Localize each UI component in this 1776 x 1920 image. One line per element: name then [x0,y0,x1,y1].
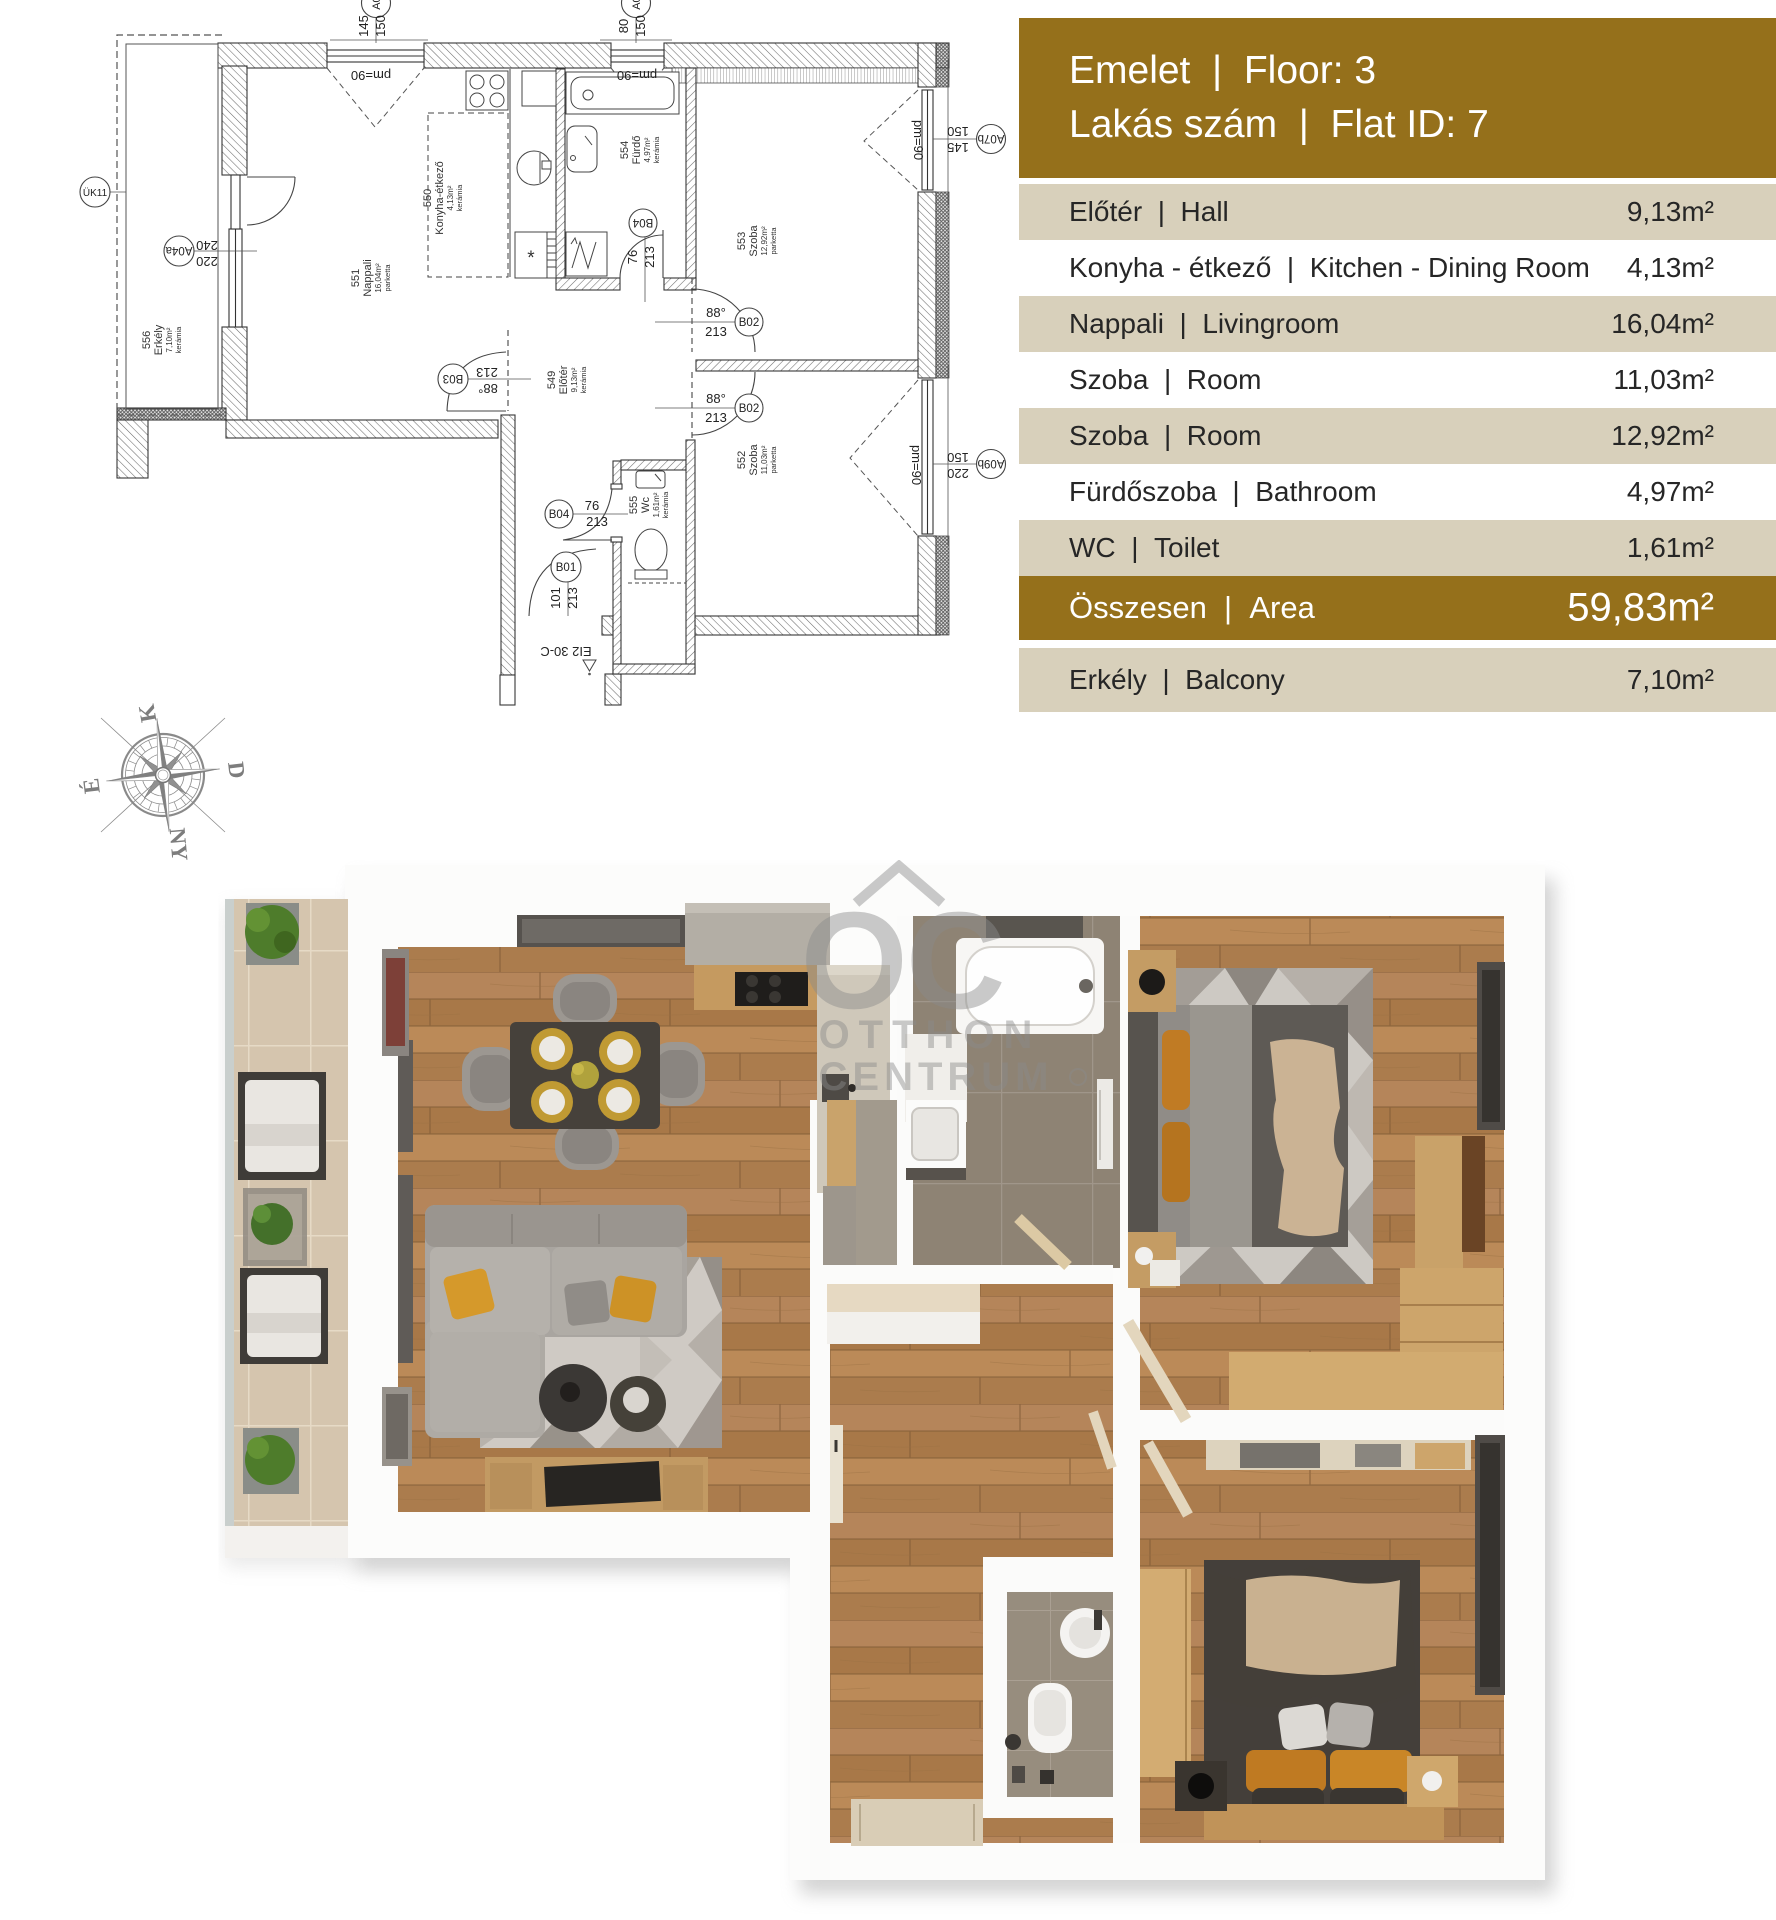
svg-text:Wc: Wc [640,497,652,513]
svg-text:213: 213 [565,587,580,609]
svg-text:B02: B02 [739,317,759,329]
svg-text:76: 76 [625,250,640,264]
svg-text:parketta: parketta [769,227,778,255]
svg-text:11,03m²: 11,03m² [760,445,769,474]
svg-text:240: 240 [196,238,218,253]
svg-text:Szoba: Szoba [748,225,760,257]
svg-text:A04: A04 [631,0,643,10]
svg-text:213: 213 [705,324,727,339]
svg-text:ÜK11: ÜK11 [83,187,108,199]
svg-text:555: 555 [628,496,640,514]
svg-text:*: * [527,248,535,269]
svg-text:K: K [134,702,162,724]
svg-text:4,13m²: 4,13m² [446,185,455,210]
svg-text:88°: 88° [706,305,726,320]
svg-text:A04: A04 [371,0,383,10]
svg-text:pm=90: pm=90 [351,68,391,83]
svg-text:É: É [78,777,105,795]
svg-text:OTTHON: OTTHON [819,1013,1042,1057]
svg-text:12,92m²: 12,92m² [760,226,769,256]
svg-text:parketta: parketta [383,264,392,292]
svg-text:9,13m²: 9,13m² [570,367,579,392]
svg-text:150: 150 [633,15,648,37]
svg-text:A07b: A07b [978,132,1005,144]
svg-text:150: 150 [947,450,969,465]
svg-text:150: 150 [373,15,388,37]
svg-text:Előtér: Előtér [558,365,570,394]
svg-text:80: 80 [616,19,631,33]
svg-text:Nappali: Nappali [362,259,374,296]
svg-text:kerámia: kerámia [579,366,588,394]
svg-text:145: 145 [356,15,371,37]
svg-text:Konyha-étkező: Konyha-étkező [434,161,446,234]
svg-text:NY: NY [165,827,193,863]
svg-text:220: 220 [947,466,969,481]
svg-text:552: 552 [736,451,748,469]
svg-text:A09b: A09b [978,457,1005,469]
svg-text:76: 76 [585,498,599,513]
svg-text:145: 145 [947,140,969,155]
svg-text:kerámia: kerámia [174,326,183,354]
svg-text:549: 549 [546,371,558,389]
svg-text:Erkély: Erkély [153,324,165,355]
svg-text:B04: B04 [632,216,653,228]
svg-text:554: 554 [619,141,631,159]
svg-text:213: 213 [705,410,727,425]
svg-text:550: 550 [422,189,434,207]
svg-text:213: 213 [642,246,657,268]
svg-text:16,04m²: 16,04m² [374,263,383,293]
svg-text:EI2 30-C: EI2 30-C [540,644,591,659]
svg-text:CENTRUM: CENTRUM [819,1055,1054,1099]
svg-text:pm=90: pm=90 [617,68,657,83]
svg-text:kerámia: kerámia [652,136,661,164]
svg-text:B01: B01 [556,562,576,574]
svg-text:D: D [223,760,250,780]
svg-text:B04: B04 [549,509,570,521]
svg-text:Fürdő: Fürdő [631,136,643,165]
svg-text:551: 551 [350,269,362,287]
svg-text:parketta: parketta [769,446,778,474]
svg-text:A04a: A04a [165,244,192,256]
svg-text:88°: 88° [706,391,726,406]
svg-text:220: 220 [196,254,218,269]
svg-text:213: 213 [476,365,498,380]
svg-text:553: 553 [736,232,748,250]
svg-text:pm=90: pm=90 [909,445,924,485]
svg-text:kerámia: kerámia [455,184,464,212]
svg-text:B02: B02 [739,403,759,415]
svg-text:150: 150 [947,124,969,139]
svg-text:556: 556 [141,331,153,349]
svg-text:88°: 88° [478,381,498,396]
svg-text:4,97m²: 4,97m² [643,137,652,162]
svg-text:7,10m²: 7,10m² [165,327,174,352]
svg-text:B03: B03 [443,372,463,384]
svg-text:Szoba: Szoba [748,444,760,476]
svg-text:1,61m²: 1,61m² [652,492,661,517]
svg-text:pm=90: pm=90 [911,120,926,160]
svg-text:101: 101 [548,587,563,609]
svg-text:kerámia: kerámia [661,491,670,519]
svg-text:213: 213 [586,514,608,529]
